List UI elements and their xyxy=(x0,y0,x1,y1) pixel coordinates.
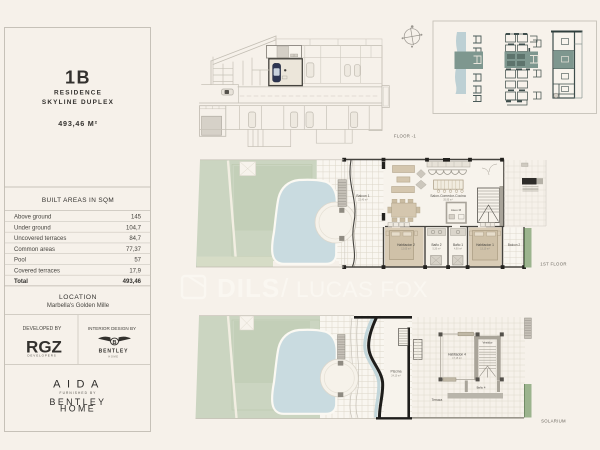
svg-text:B: B xyxy=(113,340,117,346)
svg-text:SOLARIUM: SOLARIUM xyxy=(541,419,566,424)
svg-text:FURNISHED BY: FURNISHED BY xyxy=(60,391,97,395)
svg-text:Marbella's Golden Mille: Marbella's Golden Mille xyxy=(47,303,110,309)
svg-text:1ST FLOOR: 1ST FLOOR xyxy=(540,262,567,267)
svg-text:LUCAS FOX: LUCAS FOX xyxy=(296,277,428,302)
svg-text:Uncovered terraces: Uncovered terraces xyxy=(14,236,66,242)
svg-text:145: 145 xyxy=(131,215,142,221)
svg-text:493,46: 493,46 xyxy=(123,279,142,285)
svg-text:Pool: Pool xyxy=(14,258,26,264)
svg-text:RESIDENCE: RESIDENCE xyxy=(54,89,102,96)
svg-text:22,40 m²: 22,40 m² xyxy=(358,199,368,202)
svg-text:Aseo M: Aseo M xyxy=(451,208,462,212)
svg-text:5,35 m²: 5,35 m² xyxy=(432,248,440,251)
svg-text:17,9: 17,9 xyxy=(129,268,141,274)
svg-text:17,15 m²: 17,15 m² xyxy=(452,357,462,360)
svg-text:HOME: HOME xyxy=(108,355,118,359)
svg-text:4,90 m²: 4,90 m² xyxy=(454,248,462,251)
svg-text:Salon-Comedor-Cocina: Salon-Comedor-Cocina xyxy=(430,194,466,198)
svg-text:57: 57 xyxy=(134,258,141,264)
svg-text:Under ground: Under ground xyxy=(14,225,51,231)
svg-text:INTERIOR DESIGN BY: INTERIOR DESIGN BY xyxy=(88,326,136,331)
svg-text:Baño 2: Baño 2 xyxy=(431,243,441,247)
svg-text:104,7: 104,7 xyxy=(126,225,142,231)
svg-text:Habitacion 2: Habitacion 2 xyxy=(397,243,415,247)
svg-text:Vestidor: Vestidor xyxy=(482,340,492,344)
svg-text:Habitacion 1: Habitacion 1 xyxy=(476,243,494,247)
svg-text:12,65 m²: 12,65 m² xyxy=(401,248,411,251)
svg-text:FLOOR -1: FLOOR -1 xyxy=(394,134,417,139)
svg-text:LOCATION: LOCATION xyxy=(59,294,97,301)
svg-text:Baño 1: Baño 1 xyxy=(453,243,463,247)
svg-text:Balcon 1: Balcon 1 xyxy=(356,194,369,198)
svg-text:BUILT AREAS IN SQM: BUILT AREAS IN SQM xyxy=(42,197,114,204)
svg-text:BENTLEY: BENTLEY xyxy=(99,349,129,355)
svg-text:35,95 m²: 35,95 m² xyxy=(443,199,453,202)
svg-text:Habitacion 4: Habitacion 4 xyxy=(448,353,466,357)
svg-text:84,7: 84,7 xyxy=(129,236,141,242)
svg-text:Piscina: Piscina xyxy=(391,370,402,374)
svg-text:DEVELOPERS: DEVELOPERS xyxy=(27,354,56,358)
svg-text:DILS: DILS xyxy=(217,273,280,303)
svg-text:Balcon 2: Balcon 2 xyxy=(508,243,521,247)
svg-text:493,46 M²: 493,46 M² xyxy=(58,119,98,128)
svg-text:1B: 1B xyxy=(65,68,91,88)
svg-text:24,10 m²: 24,10 m² xyxy=(391,375,401,378)
svg-text:AIDA: AIDA xyxy=(53,379,105,391)
svg-text:Baño 4: Baño 4 xyxy=(477,385,486,389)
svg-text:Total: Total xyxy=(14,279,28,285)
svg-text:/: / xyxy=(281,273,289,303)
svg-text:13,10 m²: 13,10 m² xyxy=(480,248,490,251)
svg-text:77,37: 77,37 xyxy=(126,247,142,253)
svg-text:Above ground: Above ground xyxy=(14,215,51,221)
svg-text:Covered terraces: Covered terraces xyxy=(14,268,60,274)
svg-text:SKYLINE DUPLEX: SKYLINE DUPLEX xyxy=(42,99,114,106)
svg-text:DEVELOPED BY: DEVELOPED BY xyxy=(23,326,62,332)
svg-text:Terraza: Terraza xyxy=(432,398,443,402)
svg-text:HOME: HOME xyxy=(60,404,96,414)
svg-text:Common areas: Common areas xyxy=(14,247,55,253)
